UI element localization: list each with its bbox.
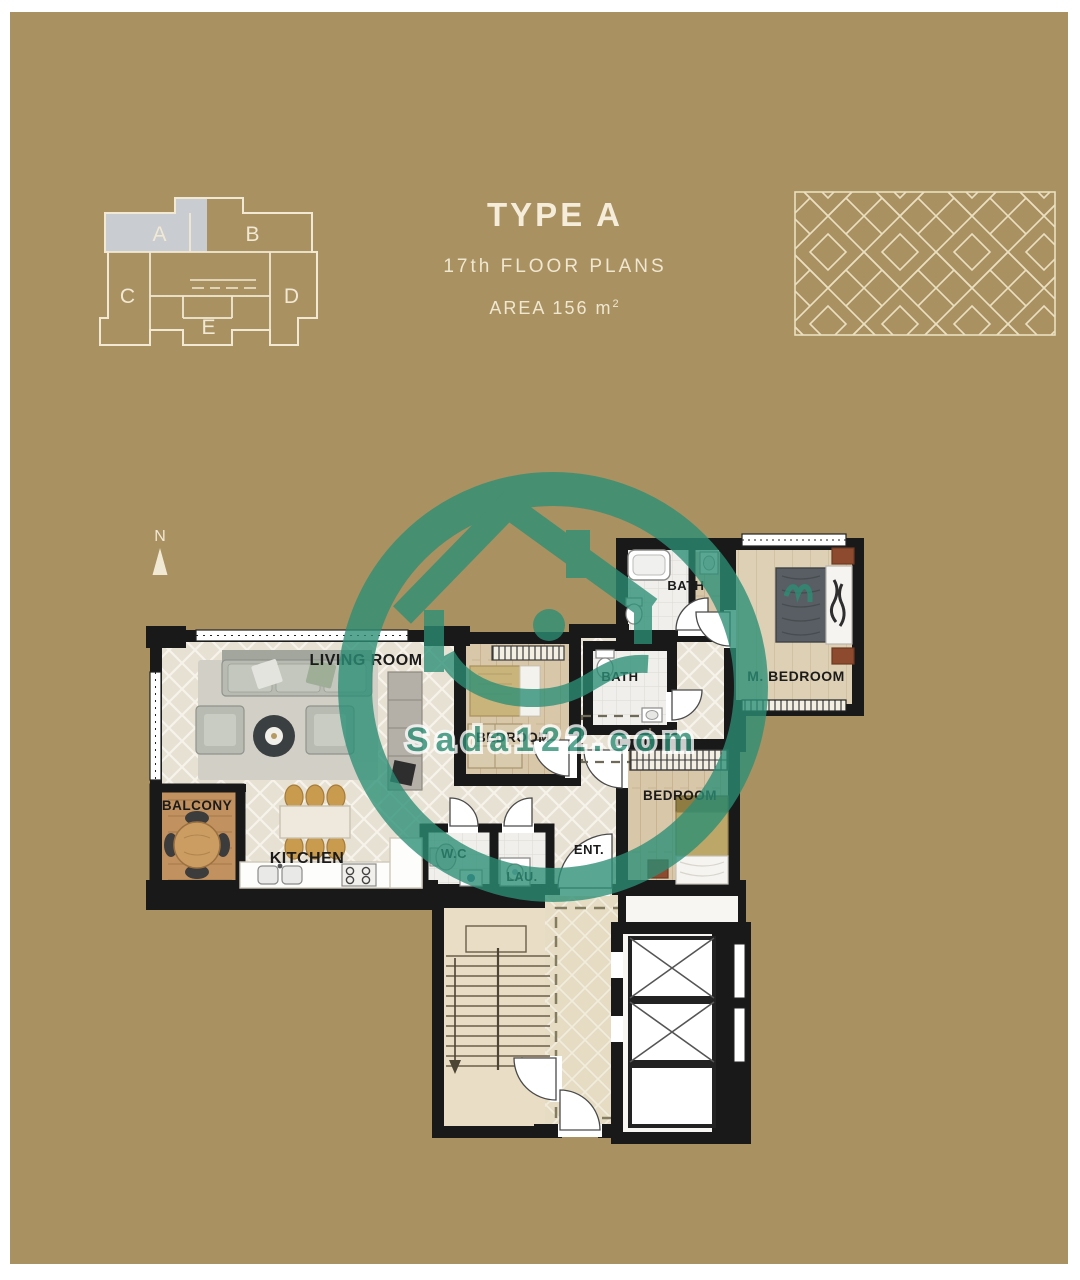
north-label: N [154, 528, 166, 545]
kitchen-label: KITCHEN [270, 850, 345, 867]
key-plan-unit-c-label: C [120, 285, 136, 308]
floor-plan-page: { "canvas": { "background_color": "#a991… [0, 0, 1080, 1280]
floor-plan-canvas: A B C D E N [0, 0, 1080, 1280]
plan-type-title: TYPE A [395, 196, 715, 234]
watermark-chimney [566, 530, 590, 578]
core-window-1 [734, 944, 745, 998]
sink-basin-2 [282, 866, 302, 884]
title-block: TYPE A 17th FLOOR PLANS AREA 156 m2 [395, 196, 715, 319]
bed-sheet [676, 856, 728, 884]
nightstand-1 [832, 548, 854, 564]
dresser [492, 646, 564, 660]
area-value: AREA 156 m [489, 298, 612, 318]
elevator-door-1 [611, 952, 623, 978]
floor-subtitle: 17th FLOOR PLANS [395, 256, 715, 278]
watermark-dot [533, 609, 565, 641]
elevator-door-2 [611, 1016, 623, 1042]
area-superscript: 2 [612, 298, 620, 310]
dining-set [280, 785, 350, 859]
watermark-site-text: Sada122.com [406, 721, 700, 759]
key-plan-unit-b-label: B [245, 223, 260, 246]
key-plan-unit-e-label: E [201, 316, 216, 339]
decorative-pattern [795, 192, 1055, 335]
watermark-wall-right [634, 602, 652, 644]
dining-table [280, 806, 350, 838]
sink-basin-1 [258, 866, 278, 884]
balcony-table [174, 822, 220, 868]
entrance-label: ENT. [574, 842, 604, 857]
bath-upper-label: BATH [667, 578, 704, 593]
nightstand-2 [832, 648, 854, 664]
key-plan-unit-d-label: D [284, 285, 300, 308]
area-text: AREA 156 m2 [395, 298, 715, 319]
key-plan-unit-a-label: A [152, 223, 167, 246]
core-window-2 [734, 1008, 745, 1062]
bed-frame [826, 566, 852, 644]
balcony-label: BALCONY [162, 798, 232, 813]
lobby-wall-bottom-left [534, 1124, 560, 1138]
